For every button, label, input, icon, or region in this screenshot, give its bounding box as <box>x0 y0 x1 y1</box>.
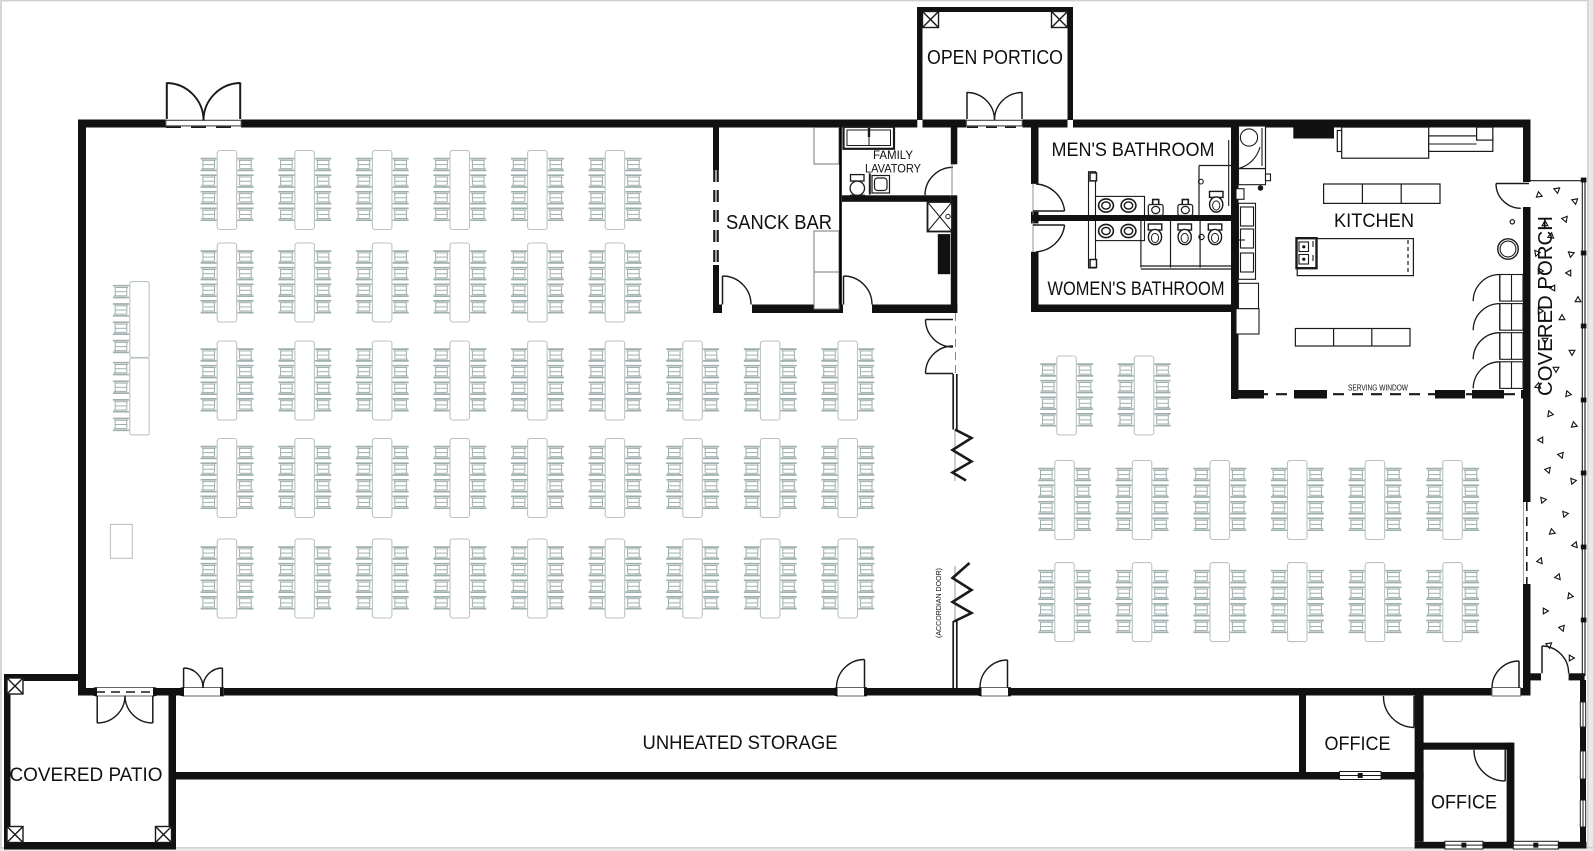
svg-text:SERVING WINDOW: SERVING WINDOW <box>1348 384 1409 393</box>
svg-text:OFFICE: OFFICE <box>1325 734 1391 755</box>
svg-text:MEN'S BATHROOM: MEN'S BATHROOM <box>1052 139 1215 161</box>
svg-text:UNHEATED STORAGE: UNHEATED STORAGE <box>643 733 838 754</box>
svg-text:(ACCORDIAN DOOR): (ACCORDIAN DOOR) <box>934 568 943 638</box>
svg-text:WOMEN'S BATHROOM: WOMEN'S BATHROOM <box>1048 278 1225 300</box>
svg-text:OFFICE: OFFICE <box>1431 793 1497 814</box>
svg-text:OPEN PORTICO: OPEN PORTICO <box>927 47 1063 69</box>
svg-text:LAVATORY: LAVATORY <box>865 164 921 176</box>
svg-text:SANCK BAR: SANCK BAR <box>726 212 832 234</box>
svg-text:KITCHEN: KITCHEN <box>1334 210 1414 232</box>
svg-text:COVERED PATIO: COVERED PATIO <box>10 765 163 786</box>
svg-text:FAMILY: FAMILY <box>873 150 913 162</box>
